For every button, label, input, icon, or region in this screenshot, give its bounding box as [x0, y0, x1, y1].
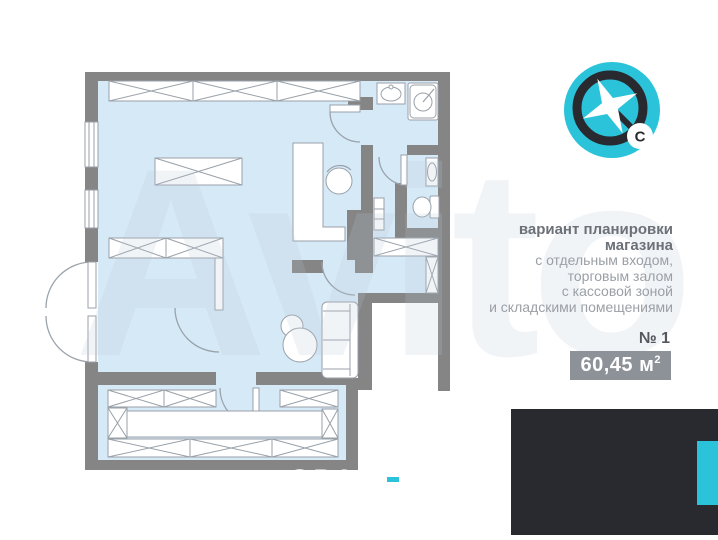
window: [85, 122, 98, 167]
shower-icon: [408, 83, 438, 120]
space-logo-e-icon: [387, 469, 404, 490]
page: Avito С вариант планировки магазина с от…: [0, 0, 718, 540]
shelving-unit: [109, 81, 360, 101]
description-title-line2: магазина: [353, 238, 673, 254]
sink-icon: [426, 158, 438, 186]
space-logo-letters: SPAC: [290, 466, 383, 493]
plan-number: № 1: [639, 330, 670, 348]
window: [85, 190, 98, 228]
compass-north-label: С: [635, 129, 646, 146]
compass-icon: С: [562, 60, 662, 160]
logo-cyan-tab: [697, 441, 718, 505]
description-title-line1: вариант планировки: [353, 222, 673, 238]
area-value: 60,45: [580, 354, 633, 376]
shelving-unit: [155, 158, 242, 185]
plan-description: вариант планировки магазина с отдельным …: [353, 222, 673, 315]
area-badge: 60,45 м2: [570, 351, 671, 380]
area-superscript: 2: [654, 354, 661, 366]
space-logo: SPAC: [0, 466, 694, 493]
description-line2: торговым залом: [353, 269, 673, 285]
toilet-icon: [413, 196, 439, 218]
entrance-door: [46, 262, 96, 362]
description-line4: и складскими помещениями: [353, 300, 673, 316]
area-unit: м: [639, 354, 654, 376]
description-line1: с отдельным входом,: [353, 253, 673, 269]
sink-icon: [377, 83, 405, 104]
description-line3: с кассовой зоной: [353, 284, 673, 300]
